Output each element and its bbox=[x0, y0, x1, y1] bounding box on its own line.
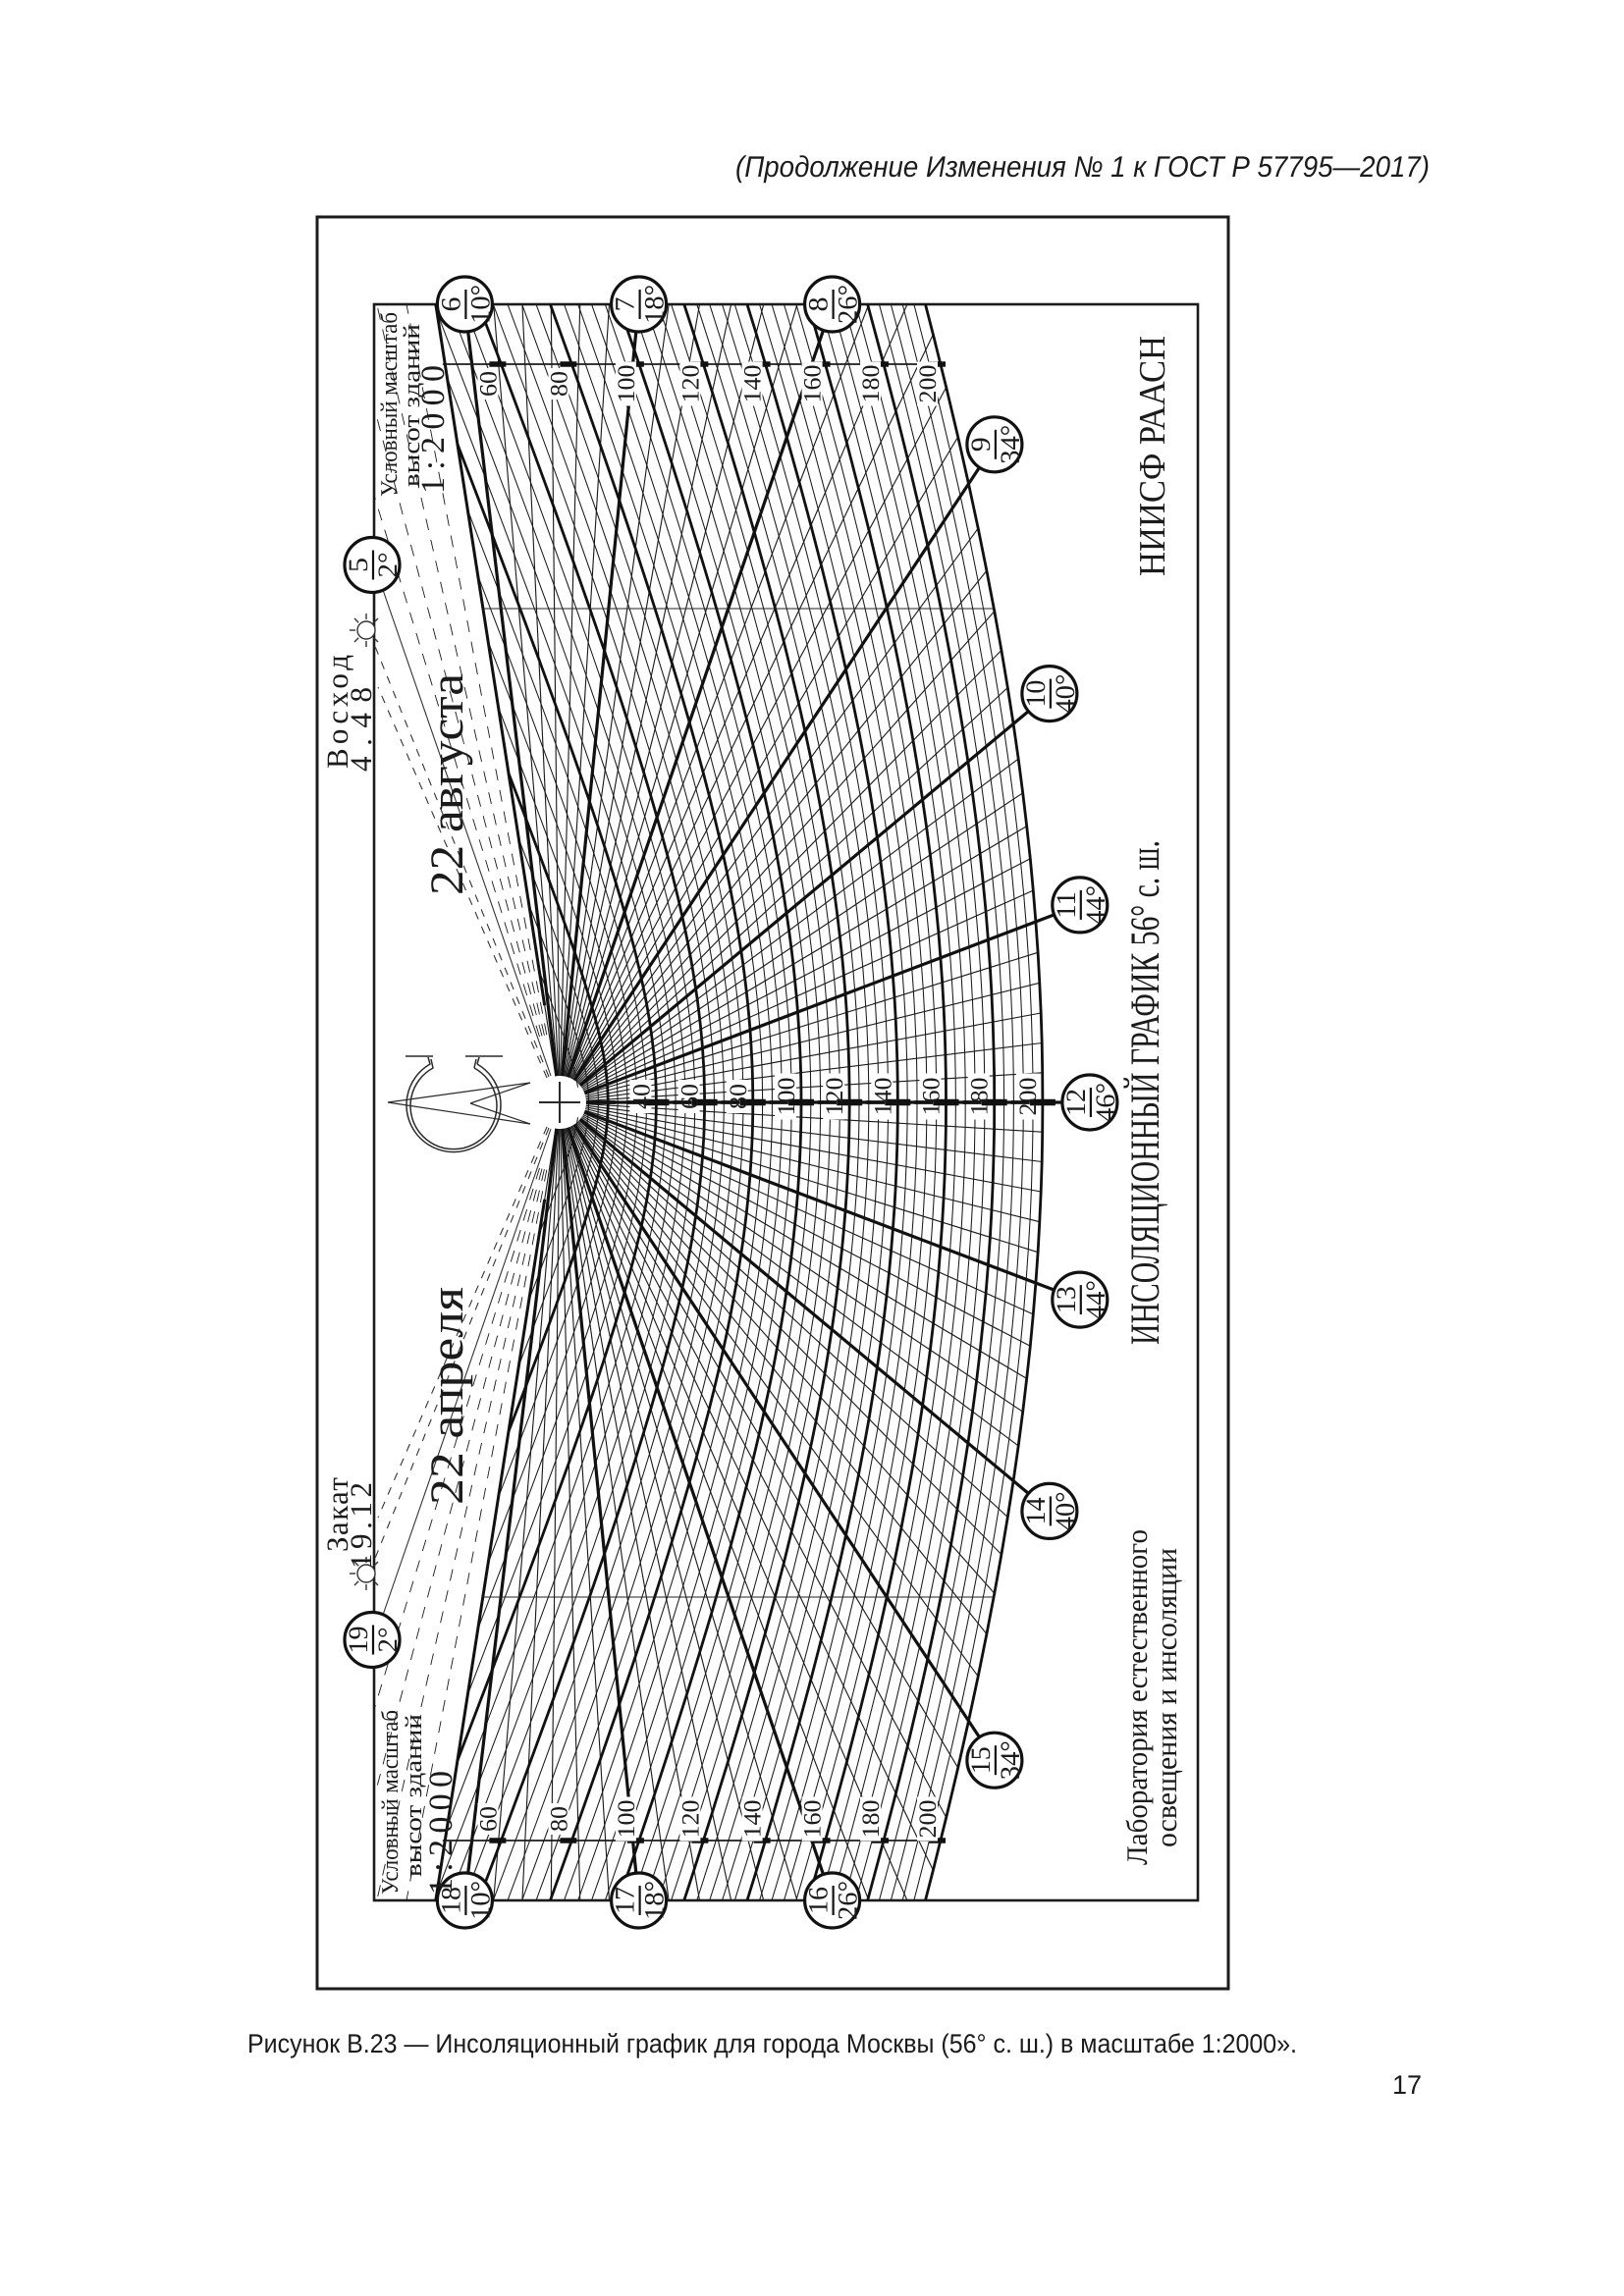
svg-text:60: 60 bbox=[475, 1806, 502, 1832]
svg-text:7: 7 bbox=[611, 297, 641, 312]
svg-text:10°: 10° bbox=[465, 285, 496, 324]
svg-text:2°: 2° bbox=[373, 553, 404, 578]
svg-text:2°: 2° bbox=[373, 1628, 404, 1653]
svg-text:22 августа: 22 августа bbox=[421, 673, 473, 895]
svg-text:180: 180 bbox=[858, 365, 885, 403]
svg-text:100: 100 bbox=[614, 365, 640, 403]
svg-text:60: 60 bbox=[475, 371, 502, 397]
svg-text:НИИСФ РААСН: НИИСФ РААСН bbox=[1132, 336, 1173, 576]
svg-text:(Продолжение Изменения № 1 к Г: (Продолжение Изменения № 1 к ГОСТ Р 5779… bbox=[735, 151, 1430, 184]
svg-text:19: 19 bbox=[344, 1627, 374, 1654]
svg-text:26°: 26° bbox=[834, 285, 864, 324]
svg-text:160: 160 bbox=[919, 1078, 946, 1116]
svg-text:40°: 40° bbox=[1051, 674, 1081, 714]
svg-text:Восход: Восход bbox=[320, 655, 354, 769]
svg-text:22 апреля: 22 апреля bbox=[421, 1287, 473, 1505]
svg-text:100: 100 bbox=[614, 1800, 640, 1839]
svg-text:Рисунок В.23 — Инсоляционный г: Рисунок В.23 — Инсоляционный график для … bbox=[247, 2029, 1297, 2058]
svg-text:120: 120 bbox=[677, 365, 704, 403]
svg-text:140: 140 bbox=[740, 365, 767, 403]
svg-text:18°: 18° bbox=[640, 1881, 671, 1920]
svg-text:5: 5 bbox=[344, 558, 374, 572]
svg-text:34°: 34° bbox=[996, 425, 1026, 464]
svg-text:200: 200 bbox=[915, 365, 942, 403]
svg-text:160: 160 bbox=[800, 365, 827, 403]
svg-text:44°: 44° bbox=[1081, 885, 1111, 925]
svg-text:Условный масштаб: Условный масштаб bbox=[378, 1710, 404, 1895]
svg-text:40°: 40° bbox=[1051, 1491, 1081, 1530]
svg-text:140: 140 bbox=[740, 1800, 767, 1839]
svg-text:17: 17 bbox=[611, 1887, 641, 1914]
svg-text:15: 15 bbox=[966, 1746, 997, 1774]
svg-text:13: 13 bbox=[1052, 1286, 1082, 1313]
svg-text:12: 12 bbox=[1061, 1089, 1092, 1116]
svg-text:80: 80 bbox=[546, 1806, 572, 1832]
svg-text:60: 60 bbox=[677, 1084, 704, 1109]
svg-text:9: 9 bbox=[966, 437, 997, 452]
svg-text:40: 40 bbox=[628, 1084, 655, 1109]
svg-text:19.12: 19.12 bbox=[344, 1482, 378, 1569]
svg-text:34°: 34° bbox=[996, 1740, 1026, 1780]
svg-text:200: 200 bbox=[1015, 1078, 1042, 1116]
svg-text:80: 80 bbox=[726, 1084, 752, 1109]
svg-text:18°: 18° bbox=[640, 285, 671, 324]
svg-text:8: 8 bbox=[804, 297, 835, 312]
svg-text:140: 140 bbox=[870, 1078, 896, 1116]
svg-text:120: 120 bbox=[677, 1800, 704, 1839]
svg-text:120: 120 bbox=[822, 1078, 848, 1116]
svg-text:14: 14 bbox=[1021, 1497, 1052, 1524]
svg-text:17: 17 bbox=[1392, 2070, 1422, 2100]
svg-text:44°: 44° bbox=[1081, 1280, 1111, 1319]
svg-text:освещения и инсоляции: освещения и инсоляции bbox=[1151, 1548, 1183, 1847]
svg-text:160: 160 bbox=[800, 1800, 827, 1839]
svg-text:Лаборатория естественного: Лаборатория естественного bbox=[1121, 1529, 1154, 1865]
svg-text:46°: 46° bbox=[1091, 1083, 1121, 1122]
svg-text:26°: 26° bbox=[834, 1881, 864, 1920]
svg-text:ИНСОЛЯЦИОННЫЙ ГРАФИК 56° с. ш.: ИНСОЛЯЦИОННЫЙ ГРАФИК 56° с. ш. bbox=[1123, 840, 1168, 1345]
svg-text:200: 200 bbox=[915, 1800, 942, 1839]
svg-text:180: 180 bbox=[967, 1078, 994, 1116]
svg-text:10: 10 bbox=[1021, 680, 1052, 708]
svg-text:16: 16 bbox=[804, 1887, 835, 1914]
svg-text:180: 180 bbox=[858, 1800, 885, 1839]
svg-text:11: 11 bbox=[1052, 891, 1082, 919]
svg-text:6: 6 bbox=[436, 297, 466, 312]
svg-text:80: 80 bbox=[546, 371, 572, 397]
svg-text:100: 100 bbox=[774, 1078, 800, 1116]
svg-text:10°: 10° bbox=[465, 1881, 496, 1920]
